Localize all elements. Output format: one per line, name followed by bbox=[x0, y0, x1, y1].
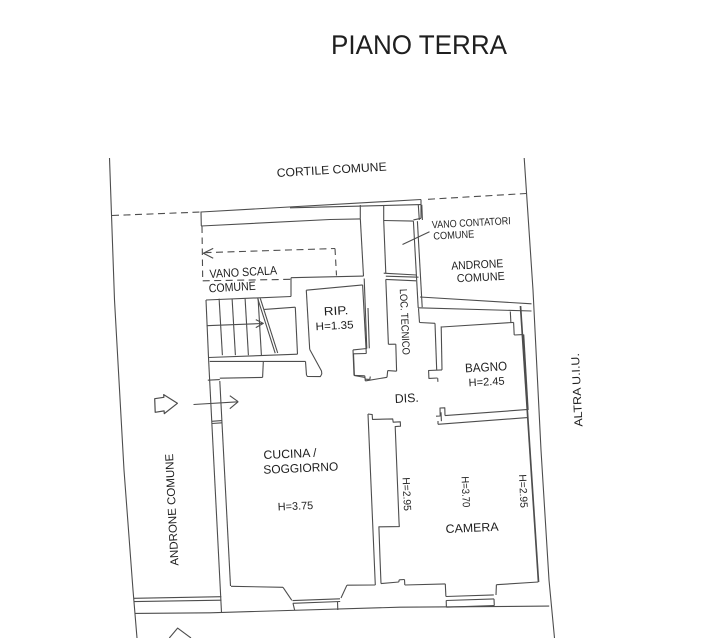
svg-text:CUCINA /: CUCINA / bbox=[263, 446, 317, 462]
svg-text:CAMERA: CAMERA bbox=[445, 520, 499, 536]
svg-text:COMUNE: COMUNE bbox=[208, 279, 256, 296]
svg-text:BAGNO: BAGNO bbox=[465, 359, 508, 375]
svg-text:H=3.75: H=3.75 bbox=[278, 500, 314, 514]
svg-text:PIANO TERRA: PIANO TERRA bbox=[331, 30, 507, 60]
svg-text:COMUNE: COMUNE bbox=[433, 228, 475, 242]
svg-text:H=2.95: H=2.95 bbox=[400, 477, 413, 511]
svg-text:H=1.35: H=1.35 bbox=[315, 319, 354, 333]
svg-text:COMUNE: COMUNE bbox=[457, 271, 506, 286]
svg-text:H=2.95: H=2.95 bbox=[516, 474, 529, 508]
svg-text:H=2.45: H=2.45 bbox=[468, 376, 505, 390]
svg-text:DIS.: DIS. bbox=[394, 391, 419, 406]
svg-text:H=3.70: H=3.70 bbox=[459, 476, 472, 508]
svg-text:RIP.: RIP. bbox=[323, 303, 348, 318]
